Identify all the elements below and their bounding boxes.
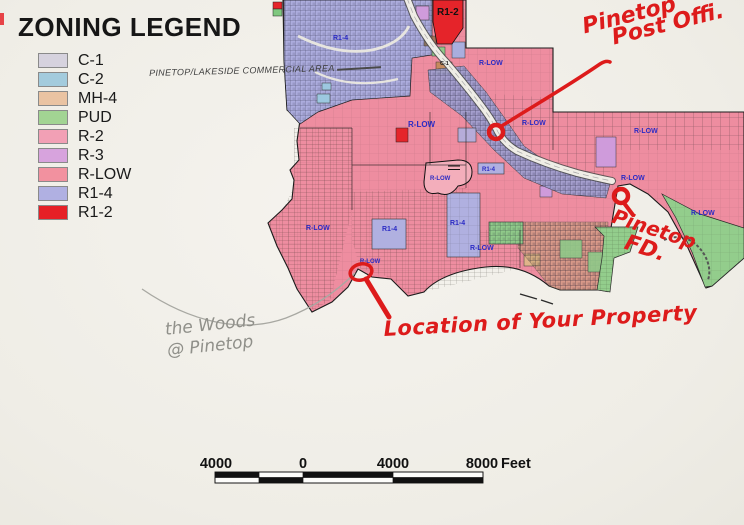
zone-c2-parcel — [322, 83, 331, 90]
legend-item-label: C-1 — [78, 52, 104, 70]
zone-r1-2-parcel — [396, 128, 408, 142]
fire-dept-circle — [614, 189, 628, 203]
legend-title: ZONING LEGEND — [18, 12, 241, 43]
zone-label: R1-4 — [333, 35, 348, 42]
zone-label: R-LOW — [634, 128, 658, 135]
legend-swatch — [38, 167, 68, 182]
scrawl-line — [338, 66, 382, 71]
zone-label: R1-4 — [382, 226, 397, 233]
zone-label: R-LOW — [691, 210, 715, 217]
scale-tick-label: 8000 — [466, 456, 498, 472]
legend-item: R1-2 — [38, 203, 241, 222]
legend-item-label: PUD — [78, 109, 112, 127]
scale-tick-label: 0 — [299, 456, 307, 472]
zone-label: R-LOW — [479, 60, 503, 67]
zoning-legend: ZONING LEGEND C-1C-2MH-4PUDR-2R-3R-LOWR1… — [18, 12, 241, 222]
zone-label: R-LOW — [306, 225, 330, 232]
legend-swatch — [38, 110, 68, 125]
legend-item-label: R-2 — [78, 128, 104, 146]
legend-item: R1-4 — [38, 184, 241, 203]
legend-swatch — [38, 186, 68, 201]
zone-label: R1-4 — [482, 167, 496, 173]
scale-bar-ticks: 4000040008000Feet — [200, 456, 531, 472]
legend-swatch — [38, 91, 68, 106]
scale-tick-label: 4000 — [200, 456, 232, 472]
legend-item: R-2 — [38, 127, 241, 146]
legend-item: MH-4 — [38, 89, 241, 108]
legend-item-label: R-LOW — [78, 166, 131, 184]
scale-unit-label: Feet — [501, 456, 531, 472]
zone-label: R1-2 — [437, 7, 459, 18]
legend-item: PUD — [38, 108, 241, 127]
zone-label: R-LOW — [522, 120, 546, 127]
scale-bar: 4000040008000Feet — [200, 456, 531, 483]
zone-label: C-1 — [440, 61, 449, 67]
zone-label: R1-4 — [450, 220, 465, 227]
legend-item-label: R1-2 — [78, 204, 113, 222]
zone-label: R-LOW — [621, 175, 645, 182]
stray-marks — [520, 294, 553, 304]
legend-item-label: R1-4 — [78, 185, 113, 203]
zone-c2-parcel — [452, 42, 465, 58]
scan-artifact — [0, 13, 4, 25]
legend-item: R-LOW — [38, 165, 241, 184]
zone-c2-parcel — [317, 94, 330, 103]
legend-item-label: C-2 — [78, 71, 104, 89]
legend-swatch — [38, 205, 68, 220]
legend-item-label: R-3 — [78, 147, 104, 165]
mixed-parcel-cluster — [518, 222, 608, 292]
legend-item-label: MH-4 — [78, 90, 117, 108]
zone-label: R-LOW — [430, 176, 451, 182]
zone-label: R-LOW — [408, 120, 436, 129]
scanned-zoning-map-page: R-LOWR-LOWR-LOWR-LOWR-LOWR-LOWR-LOWR-LOW… — [0, 0, 744, 525]
zone-r3-parcel — [596, 137, 616, 167]
legend-swatch — [38, 129, 68, 144]
scale-tick-label: 4000 — [377, 456, 409, 472]
legend-swatch — [38, 72, 68, 87]
legend-items: C-1C-2MH-4PUDR-2R-3R-LOWR1-4R1-2 — [38, 51, 241, 222]
scale-bar-blocks — [215, 472, 483, 483]
property-arrow — [366, 279, 389, 317]
legend-item: R-3 — [38, 146, 241, 165]
legend-swatch — [38, 148, 68, 163]
legend-swatch — [38, 53, 68, 68]
zone-label: R-LOW — [470, 245, 494, 252]
